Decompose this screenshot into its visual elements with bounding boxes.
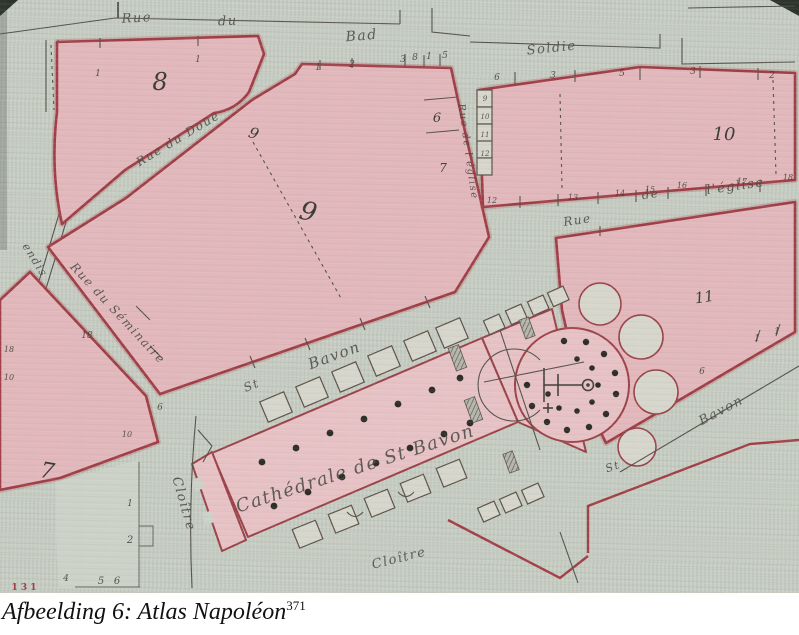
parcel-number: 9 xyxy=(483,95,488,103)
parcel-number: 1 xyxy=(315,63,321,73)
parcel-number: 18 xyxy=(81,331,93,341)
parcel-number: 6 xyxy=(494,73,500,83)
parcel-number: 1 xyxy=(95,69,101,79)
document-page: RueduBadSoldieRue du DoueRue du Séminair… xyxy=(0,0,799,635)
apse-chapel xyxy=(579,283,621,325)
street-label-st-2: St xyxy=(604,458,623,475)
parcel-number: 8 xyxy=(412,53,418,63)
block-number-10: 10 xyxy=(713,124,736,145)
parcel-number: 10 xyxy=(481,113,490,121)
photo-corner-shade xyxy=(770,0,799,16)
street-label-rue-top: Rue xyxy=(120,10,152,27)
caption-text: Afbeelding 6: Atlas Napoléon371 xyxy=(0,593,306,627)
parcel-number: 1 xyxy=(754,334,760,344)
parcel-number: 18 xyxy=(783,173,793,182)
parcel-number: 4 xyxy=(62,574,69,584)
parcel-number: 2 xyxy=(348,60,355,70)
street-label-st: St xyxy=(241,376,261,395)
parcel-number: 13 xyxy=(568,193,578,202)
parcel-number-red: 1 3 1 xyxy=(11,583,36,593)
street-label-bavon-2: Bavon xyxy=(696,393,747,429)
block-number-8: 8 xyxy=(152,68,167,96)
street-label-rue-eglise-1: Rue xyxy=(561,211,592,229)
parcel-number: 18 xyxy=(4,345,14,354)
block-number-11: 11 xyxy=(694,287,715,307)
block-7-unfinished-parcel xyxy=(55,460,153,588)
apse-chapel xyxy=(634,370,678,414)
parcel-number: 11 xyxy=(481,131,490,139)
caption-title: Afbeelding 6: Atlas Napoléon xyxy=(2,599,286,625)
caption-footnote-number: 371 xyxy=(286,598,306,613)
parcel-number: 1 xyxy=(774,327,780,337)
parcel-number: 10 xyxy=(4,373,14,382)
parcel-number: 3 xyxy=(400,55,406,65)
parcel-number: 14 xyxy=(615,189,625,198)
parcel-number: 6 xyxy=(699,367,705,377)
parcel-number: 3 xyxy=(690,67,696,77)
parcel-number: 12 xyxy=(487,196,497,205)
parcel-number: 5 xyxy=(98,576,104,587)
parcel-number: 1 xyxy=(195,55,201,65)
parcel-number: 2 xyxy=(126,535,133,546)
parcel-number: 16 xyxy=(677,181,687,190)
figure-caption: Afbeelding 6: Atlas Napoléon371 xyxy=(0,593,799,635)
parcel-number-6: 6 xyxy=(433,111,441,126)
parcel-number: 10 xyxy=(122,430,132,439)
parcel-number: 12 xyxy=(481,150,490,158)
parcel-number-7: 7 xyxy=(439,161,447,175)
apse-chapel xyxy=(618,428,656,466)
atlas-map: RueduBadSoldieRue du DoueRue du Séminair… xyxy=(0,0,799,593)
parcel-number: 17 xyxy=(737,177,748,186)
parcel-number: 1 xyxy=(426,52,432,62)
street-label-soldie: Soldie xyxy=(526,38,577,58)
parcel-number: 2 xyxy=(768,71,775,81)
parcel-number: 5 xyxy=(619,69,625,79)
photo-edge-shade xyxy=(0,0,7,250)
parcel-number: 5 xyxy=(442,51,448,61)
apse-chapel xyxy=(619,315,663,359)
parcel-number: 15 xyxy=(645,185,655,194)
street-label-bad: Bad xyxy=(344,27,378,46)
parcel-number: 3 xyxy=(550,71,556,81)
parcel-number: 6 xyxy=(157,403,163,413)
street-label-cloitre-south: Cloître xyxy=(370,545,428,573)
street-label-du-top: du xyxy=(218,13,238,29)
map-photo: RueduBadSoldieRue du DoueRue du Séminair… xyxy=(0,0,799,593)
parcel-number: 1 xyxy=(127,499,133,509)
parcel-number: 6 xyxy=(114,576,121,587)
